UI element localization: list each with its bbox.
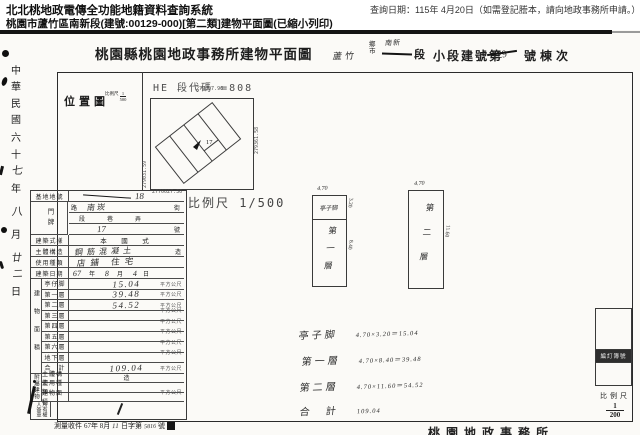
build-date-month: 8 — [104, 268, 109, 277]
township-handwritten: 蘆竹 — [332, 49, 358, 63]
area-unit: 平方公尺 — [160, 349, 182, 356]
scan-top-edge — [0, 30, 612, 34]
area-cell: 109.04 平方公尺 — [69, 363, 184, 373]
lane-units: 段 巷 弄 — [69, 214, 184, 223]
rect1-side-dimension: 8.40 — [346, 240, 353, 250]
form-row-lane: 段 巷 弄 — [69, 213, 184, 224]
calc-label: 亭子脚 — [298, 330, 339, 342]
area-unit: 平方公尺 — [160, 307, 182, 314]
area-label: 第六層 — [42, 342, 69, 352]
attached-unit-center: 造 — [123, 373, 129, 382]
township-unit: 鄉 市 — [369, 41, 376, 55]
area-group-label: 建物面積 — [32, 290, 41, 362]
owner-seal-label-cell: 所有權人簽章 — [31, 402, 51, 417]
attached-label: 建物面積 — [42, 393, 69, 402]
rect1-arcade-dimension: 3.20 — [346, 198, 353, 208]
structure-unit: 造 — [175, 247, 181, 256]
calc-label: 第二層 — [299, 382, 340, 394]
first-floor-label: 第一層 — [320, 226, 339, 279]
plan-scale-denominator: 200 — [606, 410, 624, 419]
date-char: 六 — [11, 129, 21, 144]
area-unit: 平方公尺 — [160, 328, 182, 335]
calc-equation: 4.70×3.20＝15.04 — [355, 330, 419, 339]
calc-equation: 109.04 — [356, 408, 381, 416]
plan-scale-numerator: 1 — [606, 402, 624, 410]
plan-scale-label: 比例尺 — [598, 391, 632, 401]
number-cell: 17 號 — [69, 224, 184, 234]
date-char: 年 — [11, 180, 21, 195]
scan-mark-dot — [1, 227, 7, 233]
date-char: 十 — [11, 146, 21, 161]
calc-label: 合 計 — [299, 406, 340, 418]
calc-line-total: 合 計 109.04 — [299, 400, 382, 421]
township-unit-top: 鄉 — [369, 41, 376, 48]
date-char-hand: 二 — [12, 265, 24, 280]
lot-suffix: 號棟次 — [524, 47, 572, 64]
township-unit-bottom: 市 — [369, 48, 376, 55]
scale-fraction: 1 500 — [120, 91, 127, 102]
receipt-day-hand: 11 — [112, 422, 120, 430]
arcade-label: 亭子脚 — [320, 203, 339, 213]
structure-label: 主體構造 — [31, 246, 69, 256]
usage-value: 店鋪 住宅 — [76, 255, 139, 269]
street-unit-road: 路 — [71, 203, 77, 212]
area-unit: 平方公尺 — [160, 339, 182, 346]
form-row-style: 建築式樣 本 國 式 — [31, 235, 184, 246]
location-map-box: 17 — [150, 98, 254, 190]
section-handwritten: 南新 — [384, 38, 401, 49]
date-char: 民 — [11, 95, 21, 110]
street-handwritten: 南崁 — [86, 201, 107, 213]
date-char: 日 — [11, 283, 21, 298]
attached-cell: 造 — [69, 373, 184, 382]
calc-equation: 4.70×11.60＝54.52 — [356, 382, 424, 391]
rect2-top-dimension: 4.70 — [414, 181, 425, 187]
date-char: 國 — [11, 111, 21, 126]
date-char-hand: 廿 — [11, 249, 23, 264]
plan-scale-block: 比例尺 1 200 — [598, 391, 632, 419]
scan-top-edge-light — [612, 31, 640, 33]
area-label: 第一層 — [42, 290, 69, 300]
area-label: 地下層 — [42, 353, 69, 363]
door-plate-label: 門牌 — [44, 208, 54, 229]
plan-rect-second-floor: 第二層 — [408, 190, 444, 289]
parcel-number: 17 — [206, 139, 213, 146]
scale-label: 比例尺 — [105, 91, 119, 96]
scan-mark-dot — [2, 50, 9, 57]
build-date-cell: 67 年 8 月 4 日 — [69, 269, 184, 278]
area-label: 亭仔脚 — [42, 279, 69, 289]
area-label: 第三層 — [42, 311, 69, 321]
receipt-suffix: 號 — [158, 421, 165, 431]
usage-cell: 店鋪 住宅 — [69, 256, 184, 268]
strike-mark — [83, 194, 131, 199]
parcel-map-drawing: 17 — [151, 99, 251, 187]
form-row-site-lot: 基地地號 18 — [31, 191, 184, 202]
building-form-table: 基地地號 18 門牌 路 南崁 街 段 巷 弄 17 號 — [30, 190, 187, 420]
area-group-cell: 建物面積 — [31, 279, 42, 374]
calc-label: 第一層 — [301, 356, 342, 368]
calc-equation: 4.70×8.40＝39.48 — [358, 356, 422, 365]
site-lot-value: 18 — [134, 191, 144, 201]
register-number-box: 編訂簿號 — [595, 308, 632, 386]
month-unit: 月 — [117, 269, 123, 278]
street-unit-street: 街 — [174, 203, 180, 212]
rect1-top-dimension: 4.70 — [317, 186, 328, 192]
site-lot-label: 基地地號 — [31, 191, 69, 201]
survey-receipt-line: 測量收件 67年 8月 11 日字第 5816 號 — [54, 421, 175, 431]
date-char-hand: 八 — [11, 203, 24, 219]
register-number-label: 編訂簿號 — [600, 352, 626, 360]
map-coordinate-top: 277007.96 — [196, 86, 223, 92]
street-cell: 路 南崁 街 — [69, 202, 184, 213]
build-date-year: 67 — [72, 268, 81, 277]
location-map-scale: 比例尺 1 500 — [105, 91, 126, 102]
area-unit: 平方公尺 — [160, 365, 182, 372]
signature-squiggle — [117, 403, 123, 415]
document-title: 桃園縣桃園地政事務所建物平面圖 — [95, 43, 313, 63]
build-date-day: 4 — [132, 268, 137, 277]
year-unit: 年 — [89, 269, 95, 278]
document-subtitle: 桃園市蘆竹區南新段(建號:00129-000)[第二類]建物平面圖(已縮小列印) — [6, 16, 333, 31]
area-label: 第四層 — [42, 321, 69, 331]
date-char: 華 — [11, 78, 21, 93]
style-value: 本 國 式 — [69, 235, 184, 245]
style-label: 建築式樣 — [31, 235, 69, 245]
map-coordinate-left: 279031.59 — [142, 136, 148, 188]
form-row-number: 17 號 — [69, 224, 184, 235]
area-unit: 平方公尺 — [160, 318, 182, 325]
section-unit: 段 — [414, 46, 425, 62]
door-plate-label-cell: 門牌 — [31, 202, 68, 235]
form-row-usage: 使用種類 店鋪 住宅 — [31, 257, 184, 268]
area-label: 第五層 — [42, 332, 69, 342]
number-handwritten: 17 — [96, 224, 106, 234]
date-char: 月 — [11, 226, 21, 241]
query-date: 查詢日期：115年 4月20日（如需登記謄本，請向地政事務所申請。） — [370, 3, 640, 16]
office-name: 桃園地政事務所 — [428, 424, 554, 435]
pen-dot-mark — [33, 380, 36, 383]
area-label: 第二層 — [42, 300, 69, 310]
second-floor-label: 第二層 — [415, 203, 436, 277]
day-unit: 日 — [143, 269, 149, 278]
map-coordinate-right: 279361.58 — [254, 100, 260, 154]
receipt-date: 67年 8月 — [84, 421, 110, 431]
attached-row: 建物面積 平方公尺 — [42, 393, 184, 403]
scale-denominator: 500 — [120, 96, 127, 102]
receipt-stamp-box — [167, 422, 175, 430]
plan-rect-first-floor: 亭子脚 第一層 — [312, 195, 347, 287]
attached-unit: 平方公尺 — [160, 389, 182, 396]
receipt-number-hand: 5816 — [144, 424, 157, 430]
site-lot-value-cell: 18 — [69, 191, 184, 201]
receipt-prefix: 測量收件 — [54, 421, 82, 431]
form-row-street: 路 南崁 街 — [69, 202, 184, 213]
plan-scale-text: 比例尺 1/500 — [188, 194, 285, 211]
date-char: 中 — [11, 62, 21, 77]
build-date-label: 建築日期 — [31, 268, 69, 278]
date-char-hand: 七 — [11, 162, 24, 178]
query-system-page: 北北桃地政電傳全功能地籍資料查詢系統 查詢日期：115年 4月20日（如需登記謄… — [0, 0, 640, 435]
receipt-mid: 日字第 — [121, 421, 142, 431]
location-map-label: 位置圖 — [64, 93, 109, 109]
usage-label: 使用種類 — [31, 257, 69, 267]
location-map-cell — [57, 72, 143, 191]
number-unit: 號 — [174, 225, 180, 234]
owner-seal-label: 所有權人簽章 — [35, 402, 47, 417]
